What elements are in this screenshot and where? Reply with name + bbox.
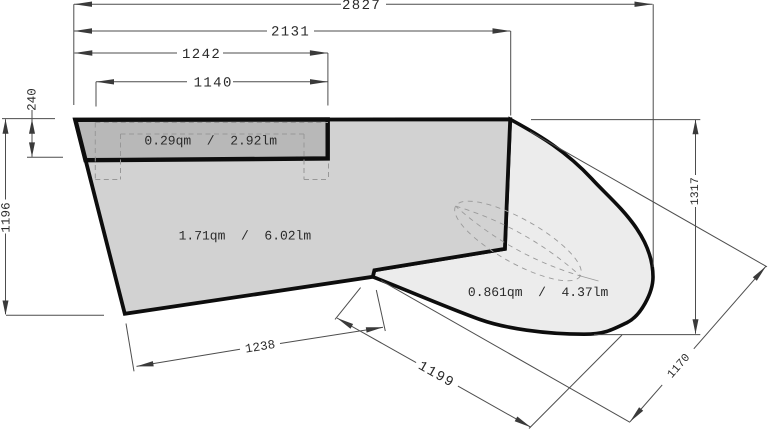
svg-text:240: 240 bbox=[26, 88, 40, 111]
svg-text:0.29qm / 2.92lm: 0.29qm / 2.92lm bbox=[144, 134, 277, 149]
svg-text:1317: 1317 bbox=[689, 177, 702, 205]
svg-text:1.71qm / 6.02lm: 1.71qm / 6.02lm bbox=[179, 228, 312, 243]
svg-text:1140: 1140 bbox=[194, 76, 233, 92]
svg-text:1242: 1242 bbox=[182, 47, 221, 63]
svg-text:2827: 2827 bbox=[342, 0, 381, 14]
svg-text:2131: 2131 bbox=[271, 25, 310, 41]
svg-text:0.861qm / 4.37lm: 0.861qm / 4.37lm bbox=[468, 285, 609, 300]
svg-text:1196: 1196 bbox=[0, 202, 14, 232]
